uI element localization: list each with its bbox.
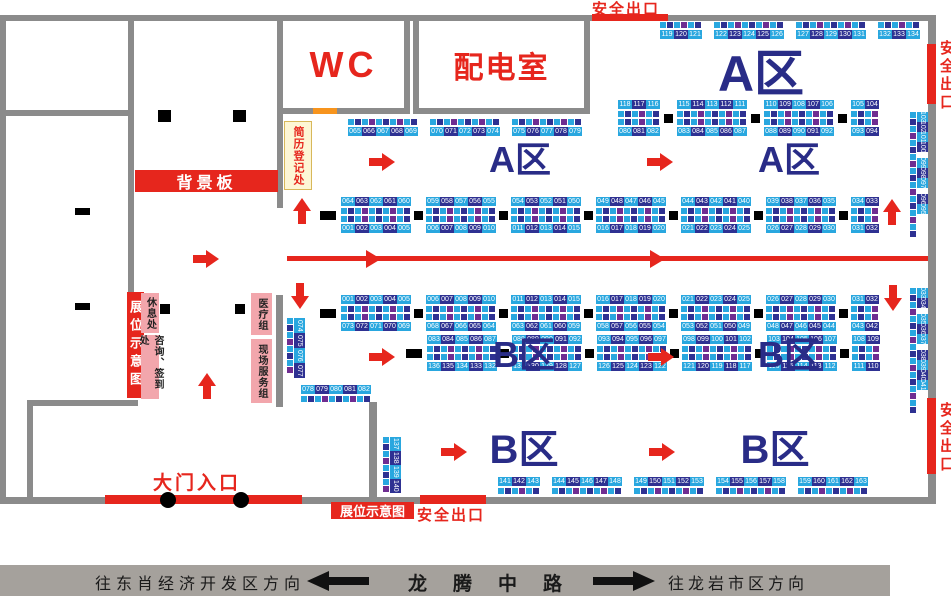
booth-square xyxy=(772,488,778,494)
booth-number: 081 xyxy=(343,385,357,394)
booth-number-row: 136135134133132 xyxy=(427,362,497,371)
booth-number: 044 xyxy=(822,322,836,331)
booth-square xyxy=(362,314,368,320)
booth-number: 091 xyxy=(554,335,568,344)
booth-number: 068 xyxy=(390,127,404,136)
booth-square xyxy=(910,393,916,399)
entrance-door xyxy=(105,495,302,504)
booth-square-row xyxy=(766,314,836,320)
booth-number: 135 xyxy=(441,362,455,371)
booth-group: 034033031032 xyxy=(851,197,879,233)
booth-square xyxy=(808,216,814,222)
booth-square xyxy=(780,306,786,312)
booth-square xyxy=(737,488,743,494)
booth-number: 111 xyxy=(852,362,866,371)
booth-square xyxy=(618,346,624,352)
booth-number: 034 xyxy=(851,197,865,206)
booth-square xyxy=(573,488,579,494)
pillar-marker xyxy=(320,309,336,318)
booth-number-row: 006007008009010 xyxy=(426,224,496,233)
booth-square xyxy=(617,208,623,214)
booth-number: 009 xyxy=(468,295,482,304)
booth-square xyxy=(611,354,617,360)
booth-number: 121 xyxy=(682,362,696,371)
booth-number: 096 xyxy=(917,194,928,204)
booth-number: 126 xyxy=(597,362,611,371)
booth-square xyxy=(489,208,495,214)
booth-number-row: 093094095096097 xyxy=(597,335,667,344)
booth-square xyxy=(819,488,825,494)
resume-registration-box: 简历登记处 xyxy=(284,121,312,190)
booth-square xyxy=(518,216,524,222)
booth-square xyxy=(737,314,743,320)
booth-square xyxy=(838,22,844,28)
booth-number-row: 034033 xyxy=(851,197,879,206)
booth-number: 049 xyxy=(596,197,610,206)
booth-number: 032 xyxy=(865,224,879,233)
booth-square xyxy=(575,119,581,125)
booth-square xyxy=(440,208,446,214)
booth-square xyxy=(698,111,704,117)
booth-square xyxy=(773,208,779,214)
booth-square xyxy=(910,154,916,160)
booth-square xyxy=(553,216,559,222)
booth-square-row xyxy=(851,216,879,222)
up-arrow-icon xyxy=(883,199,901,225)
booth-number: 106 xyxy=(820,100,834,109)
booth-square xyxy=(751,488,757,494)
booth-square xyxy=(561,354,567,360)
booth-number-column: 033034035036037038039040041 xyxy=(917,288,928,390)
booth-square xyxy=(404,208,410,214)
booth-square xyxy=(724,346,730,352)
booth-square xyxy=(845,22,851,28)
booth-square xyxy=(525,208,531,214)
booth-square xyxy=(486,119,492,125)
booth-square xyxy=(766,216,772,222)
booth-square xyxy=(539,216,545,222)
pillar-marker xyxy=(754,211,763,220)
booth-number: 147 xyxy=(594,477,608,486)
booth-square xyxy=(638,216,644,222)
booth-square-column xyxy=(910,288,916,413)
booth-square xyxy=(369,306,375,312)
booth-square xyxy=(532,216,538,222)
main-entrance-label: 大门入口 xyxy=(153,468,241,495)
booth-square xyxy=(617,314,623,320)
booth-number: 005 xyxy=(397,295,411,304)
booth-square xyxy=(910,337,916,343)
booth-number: 084 xyxy=(691,127,705,136)
booth-number: 065 xyxy=(468,322,482,331)
booth-number: 024 xyxy=(723,295,737,304)
booth-number: 001 xyxy=(341,224,355,233)
booth-square xyxy=(690,488,696,494)
booth-square xyxy=(851,306,857,312)
booth-number: 022 xyxy=(695,224,709,233)
booth-square-row xyxy=(851,208,879,214)
booth-square xyxy=(910,203,916,209)
booth-number: 119 xyxy=(660,30,674,39)
booth-square xyxy=(831,22,837,28)
booth-square xyxy=(397,208,403,214)
booth-square xyxy=(851,111,857,117)
booth-group: 044043042041040021022023024025 xyxy=(681,197,751,233)
booth-square xyxy=(631,208,637,214)
booth-number-row: 159160161162163 xyxy=(798,477,868,486)
booth-number: 076 xyxy=(294,348,305,363)
booth-number: 079 xyxy=(315,385,329,394)
booth-number: 151 xyxy=(662,477,676,486)
booth-number: 002 xyxy=(355,295,369,304)
booth-number: 143 xyxy=(526,477,540,486)
booth-number: 001 xyxy=(341,295,355,304)
booth-number: 125 xyxy=(756,30,770,39)
booth-square xyxy=(546,208,552,214)
booth-square xyxy=(625,111,631,117)
pillar-marker xyxy=(585,349,594,358)
zone-label: B区 xyxy=(758,337,820,373)
booth-square xyxy=(390,314,396,320)
booth-number: 020 xyxy=(652,295,666,304)
pillar-marker xyxy=(751,114,760,123)
booth-square xyxy=(383,465,389,471)
booth-number: 028 xyxy=(794,295,808,304)
booth-square xyxy=(910,196,916,202)
booth-square xyxy=(681,314,687,320)
booth-number: 085 xyxy=(455,335,469,344)
booth-square-row xyxy=(681,216,751,222)
booth-square xyxy=(441,354,447,360)
booth-square xyxy=(695,216,701,222)
booth-square xyxy=(738,354,744,360)
booth-number: 010 xyxy=(482,224,496,233)
pillar-marker xyxy=(838,114,847,123)
booth-number: 108 xyxy=(852,335,866,344)
booth-number: 132 xyxy=(878,30,892,39)
booth-square xyxy=(801,314,807,320)
booth-number: 086 xyxy=(719,127,733,136)
booth-square xyxy=(669,488,675,494)
booth-square xyxy=(383,486,389,492)
pillar-marker xyxy=(669,309,678,318)
booth-square xyxy=(815,208,821,214)
booth-number-row: 026027028029030 xyxy=(766,295,836,304)
booth-group: 064063062061060001002003004005 xyxy=(341,197,411,233)
booth-square-row xyxy=(766,306,836,312)
booth-square xyxy=(287,325,293,331)
booth-number: 142 xyxy=(512,477,526,486)
booth-square xyxy=(455,354,461,360)
booth-strip-a-upper-left: 0650660670680690700710720730740750760770… xyxy=(348,119,582,136)
booth-square xyxy=(737,306,743,312)
booth-square xyxy=(910,133,916,139)
booth-square xyxy=(859,354,865,360)
booth-number: 148 xyxy=(608,477,622,486)
booth-number: 121 xyxy=(688,30,702,39)
booth-square xyxy=(709,306,715,312)
booth-square xyxy=(652,306,658,312)
wall-power-right xyxy=(584,21,590,114)
booth-square xyxy=(659,216,665,222)
booth-square xyxy=(462,346,468,352)
booth-square xyxy=(574,216,580,222)
booth-square xyxy=(910,309,916,315)
booth-number: 025 xyxy=(737,295,751,304)
booth-number-row: 026027028029030 xyxy=(766,224,836,233)
booth-square xyxy=(910,323,916,329)
booth-square xyxy=(910,126,916,132)
booth-number: 134 xyxy=(455,362,469,371)
booth-square xyxy=(712,119,718,125)
booth-number: 049 xyxy=(737,322,751,331)
booth-square xyxy=(512,488,518,494)
booth-square xyxy=(723,488,729,494)
booth-square xyxy=(426,208,432,214)
booth-square xyxy=(859,22,865,28)
power-room-label: 配电室 xyxy=(419,21,584,108)
booth-number: 072 xyxy=(458,127,472,136)
booth-square xyxy=(826,488,832,494)
booth-square xyxy=(597,346,603,352)
booth-square xyxy=(794,216,800,222)
booth-number-row: 054053052051050 xyxy=(511,197,581,206)
booth-square xyxy=(483,346,489,352)
booth-number: 055 xyxy=(482,197,496,206)
booth-number: 018 xyxy=(624,224,638,233)
booth-square xyxy=(719,111,725,117)
booth-square xyxy=(731,346,737,352)
booth-square xyxy=(617,216,623,222)
booth-square xyxy=(610,314,616,320)
booth-group: 132133134 xyxy=(878,22,920,39)
booth-square xyxy=(723,216,729,222)
booth-number: 080 xyxy=(329,385,343,394)
booth-square xyxy=(383,119,389,125)
booth-number: 014 xyxy=(553,224,567,233)
booth-square xyxy=(461,216,467,222)
booth-number: 017 xyxy=(610,295,624,304)
booth-square xyxy=(552,488,558,494)
booth-square xyxy=(468,216,474,222)
wall-vestibule-h xyxy=(27,400,138,406)
booth-square xyxy=(829,314,835,320)
booth-square xyxy=(580,488,586,494)
booth-square xyxy=(601,488,607,494)
booth-square xyxy=(794,306,800,312)
booth-number: 010 xyxy=(482,295,496,304)
booth-square xyxy=(455,346,461,352)
left-arrow-icon xyxy=(305,571,369,591)
booth-group: 065066067068069 xyxy=(348,119,418,136)
booth-number: 093 xyxy=(851,127,865,136)
entrance-dot xyxy=(160,492,176,508)
booth-number: 037 xyxy=(794,197,808,206)
booth-square-row xyxy=(341,208,411,214)
booth-number: 160 xyxy=(812,477,826,486)
booth-square xyxy=(910,316,916,322)
booth-square xyxy=(682,346,688,352)
booth-square xyxy=(433,314,439,320)
booth-square xyxy=(742,22,748,28)
booth-square xyxy=(301,396,307,402)
booth-square-row xyxy=(596,208,666,214)
booth-number: 126 xyxy=(770,30,784,39)
booth-group: 137138139140 xyxy=(390,437,401,493)
booth-square xyxy=(796,22,802,28)
booth-number: 035 xyxy=(822,197,836,206)
booth-square xyxy=(610,216,616,222)
booth-square xyxy=(735,22,741,28)
booth-square xyxy=(646,111,652,117)
booth-square xyxy=(682,354,688,360)
booth-number-row: 144145146147148 xyxy=(552,477,622,486)
booth-number: 022 xyxy=(695,295,709,304)
booth-square xyxy=(695,306,701,312)
booth-number-row: 001002003004005 xyxy=(341,224,411,233)
booth-square xyxy=(618,354,624,360)
booth-number-row: 141142143 xyxy=(498,477,540,486)
booth-number: 091 xyxy=(806,127,820,136)
booth-square xyxy=(792,119,798,125)
booth-square xyxy=(858,216,864,222)
booth-number: 034 xyxy=(917,298,928,308)
booth-square xyxy=(824,22,830,28)
booth-square xyxy=(448,354,454,360)
booth-number: 021 xyxy=(681,295,695,304)
booth-group: 118117116080081082 xyxy=(618,100,660,136)
booth-number: 047 xyxy=(780,322,794,331)
booth-square xyxy=(780,314,786,320)
booth-number: 052 xyxy=(539,197,553,206)
booth-square xyxy=(677,111,683,117)
booth-square xyxy=(866,346,872,352)
booth-number: 085 xyxy=(705,127,719,136)
booth-number-row: 044043042041040 xyxy=(681,197,751,206)
booth-square xyxy=(744,314,750,320)
booth-number: 019 xyxy=(638,295,652,304)
booth-square xyxy=(440,314,446,320)
booth-square xyxy=(703,346,709,352)
booth-number: 127 xyxy=(568,362,582,371)
booth-number: 155 xyxy=(730,477,744,486)
booth-number: 047 xyxy=(624,197,638,206)
booth-square xyxy=(910,224,916,230)
booth-square xyxy=(910,386,916,392)
booth-square xyxy=(568,119,574,125)
booth-number: 015 xyxy=(567,224,581,233)
booth-strip-b-right-wall: 033034035036037038039040041 xyxy=(910,288,928,413)
booth-group: 144145146147148 xyxy=(552,477,622,494)
booth-square-row xyxy=(511,306,581,312)
booth-number: 077 xyxy=(294,363,305,378)
booth-number: 101 xyxy=(917,132,928,142)
right-arrow-icon xyxy=(441,443,467,461)
pillar-marker xyxy=(233,110,246,122)
wall-vestibule-v xyxy=(27,400,33,497)
booth-square-row xyxy=(426,216,496,222)
booth-number: 013 xyxy=(539,295,553,304)
booth-square-row xyxy=(426,306,496,312)
booth-number: 030 xyxy=(822,295,836,304)
booth-square xyxy=(287,318,293,324)
booth-square xyxy=(369,314,375,320)
booth-square xyxy=(822,314,828,320)
booth-number: 036 xyxy=(917,324,928,334)
booth-square-row xyxy=(427,346,497,352)
booth-square xyxy=(684,111,690,117)
booth-square xyxy=(667,22,673,28)
booth-square-row xyxy=(764,111,834,117)
booth-square-row xyxy=(512,119,582,125)
booth-square xyxy=(447,306,453,312)
booth-number: 090 xyxy=(792,127,806,136)
booth-square xyxy=(355,208,361,214)
booth-strip-left-mid: 078079080081082 xyxy=(301,385,371,402)
booth-square xyxy=(659,314,665,320)
booth-square xyxy=(829,306,835,312)
booth-square xyxy=(539,306,545,312)
road-name: 龙腾中路 xyxy=(408,569,588,596)
booth-group: 122123124125126 xyxy=(714,22,784,39)
booth-number: 133 xyxy=(469,362,483,371)
booth-number-row: 058057056055054 xyxy=(596,322,666,331)
booth-number-row: 016017018019020 xyxy=(596,224,666,233)
booth-square-row xyxy=(681,314,751,320)
booth-number: 042 xyxy=(709,197,723,206)
booth-square xyxy=(798,488,804,494)
booth-number: 144 xyxy=(552,477,566,486)
booth-square xyxy=(861,488,867,494)
booth-number-row: 039038037036035 xyxy=(766,197,836,206)
booth-square xyxy=(597,354,603,360)
booth-square-row xyxy=(766,216,836,222)
booth-square xyxy=(567,208,573,214)
booth-square xyxy=(489,314,495,320)
booth-square xyxy=(817,22,823,28)
pillar-marker xyxy=(669,211,678,220)
booth-number: 118 xyxy=(724,362,738,371)
booth-square-row xyxy=(301,396,371,402)
pillar-marker xyxy=(754,309,763,318)
booth-number: 094 xyxy=(611,335,625,344)
booth-square xyxy=(461,208,467,214)
booth-number: 116 xyxy=(646,100,660,109)
booth-number: 071 xyxy=(444,127,458,136)
booth-square xyxy=(799,119,805,125)
booth-square xyxy=(740,119,746,125)
booth-square xyxy=(350,396,356,402)
booth-square xyxy=(461,306,467,312)
pillar-marker xyxy=(839,309,848,318)
booth-square xyxy=(596,216,602,222)
booth-square xyxy=(383,472,389,478)
booth-square xyxy=(287,367,293,373)
booth-square xyxy=(823,354,829,360)
booth-square xyxy=(731,354,737,360)
pillar-marker xyxy=(75,303,90,310)
booth-square xyxy=(383,451,389,457)
booth-square xyxy=(624,306,630,312)
booth-number: 065 xyxy=(348,127,362,136)
booth-number-column: 074075076077 xyxy=(294,318,305,378)
booth-number-row: 121120119118117 xyxy=(682,362,752,371)
booth-square xyxy=(823,346,829,352)
booth-square xyxy=(858,314,864,320)
booth-square xyxy=(858,306,864,312)
booth-square xyxy=(567,306,573,312)
booth-square xyxy=(427,354,433,360)
